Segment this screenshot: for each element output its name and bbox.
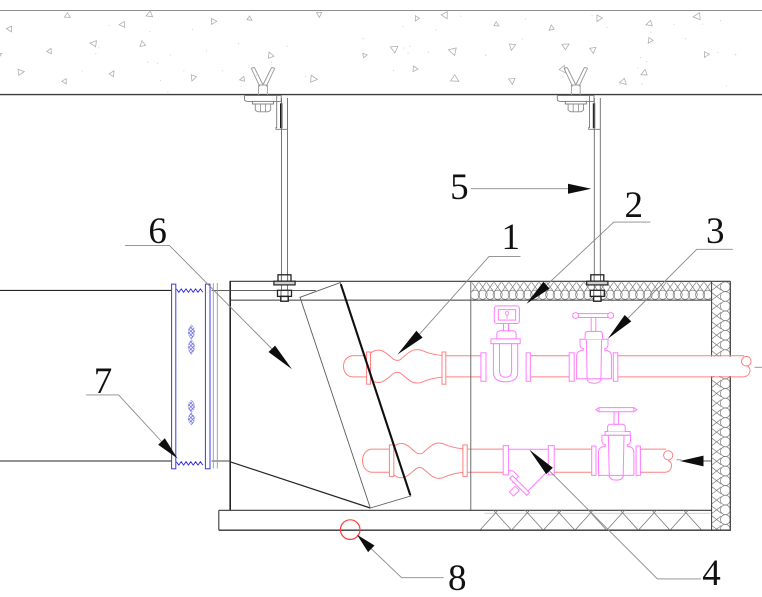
svg-text:8: 8 [448, 558, 467, 597]
svg-text:4: 4 [702, 553, 721, 594]
svg-text:5: 5 [450, 167, 469, 208]
svg-text:7: 7 [94, 361, 113, 402]
svg-text:1: 1 [501, 217, 520, 258]
svg-text:2: 2 [625, 185, 644, 226]
svg-text:3: 3 [706, 211, 725, 252]
svg-text:6: 6 [148, 211, 167, 252]
